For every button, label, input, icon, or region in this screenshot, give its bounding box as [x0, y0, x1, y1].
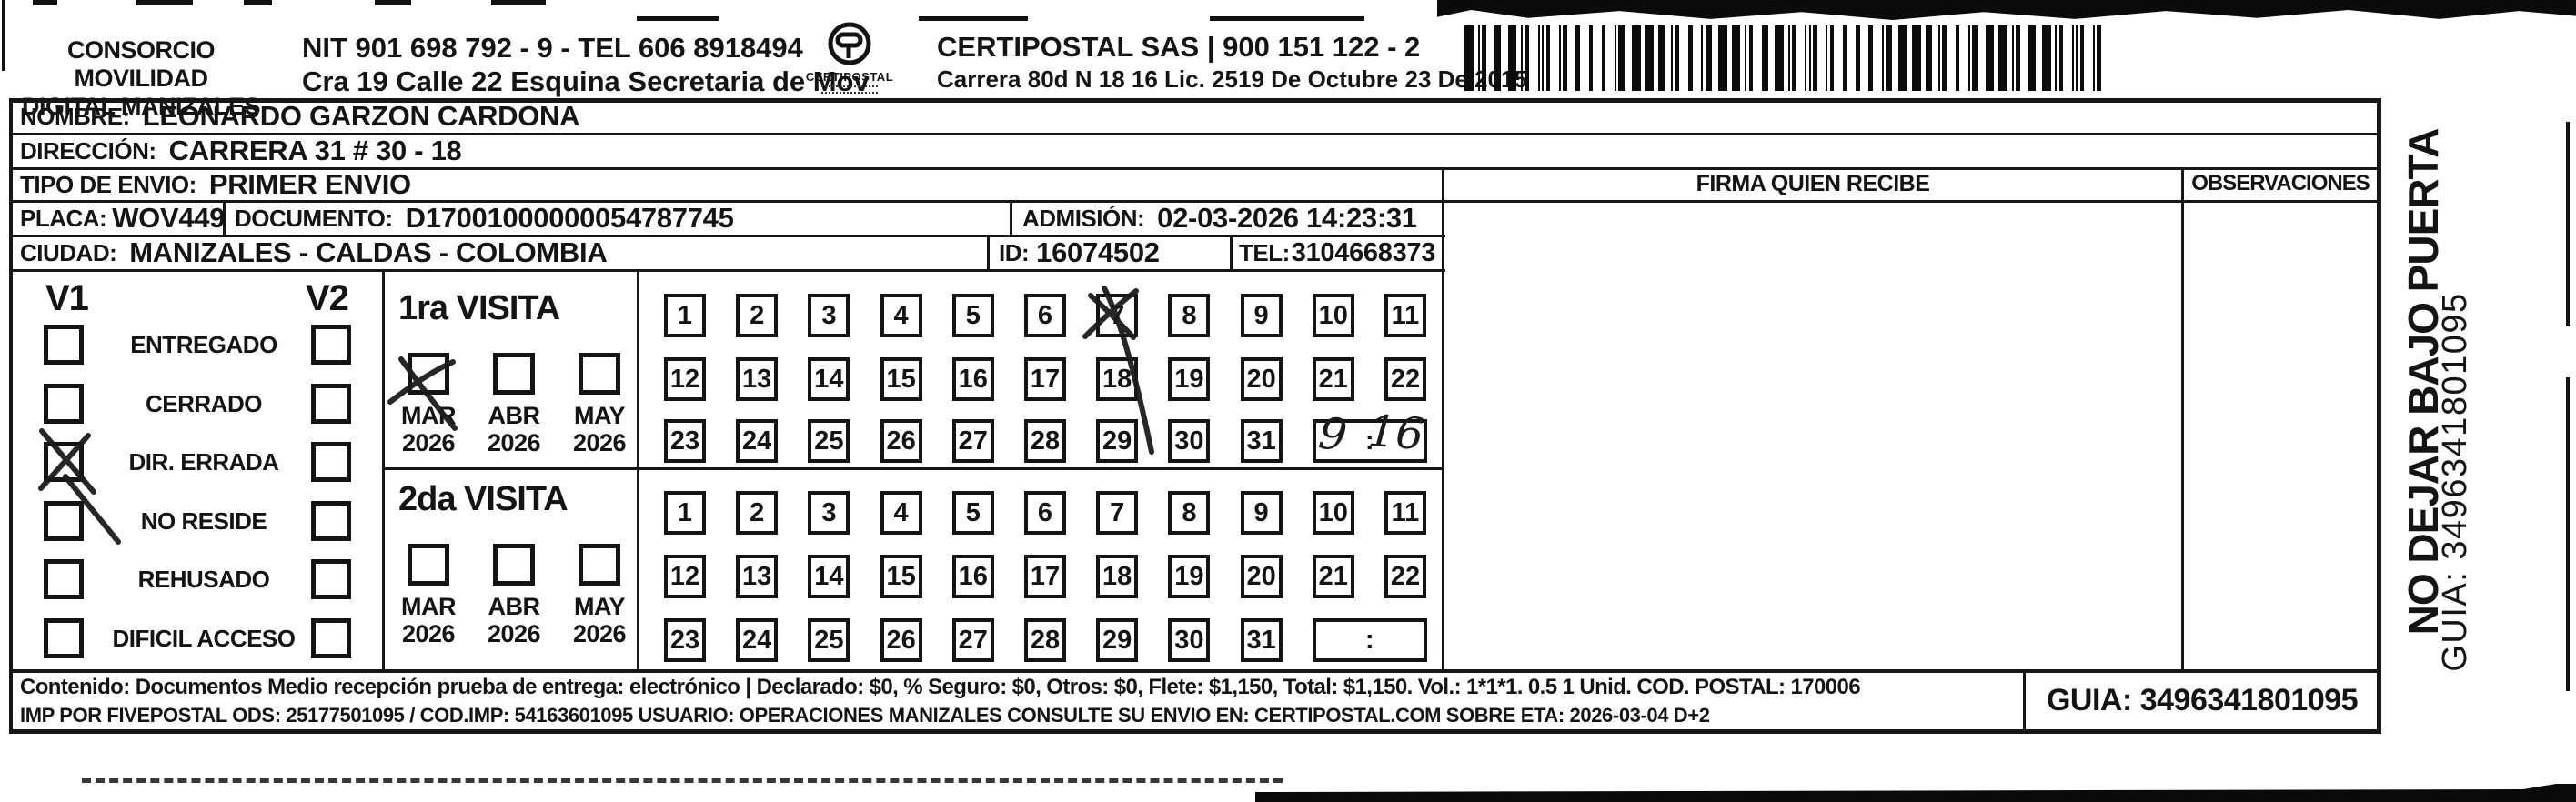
- footer-shipment-details: Contenido: Documentos Medio recepción pr…: [20, 675, 1860, 700]
- visit1-day-11[interactable]: 11: [1384, 294, 1426, 337]
- first-visit-abr-checkbox[interactable]: [493, 353, 535, 395]
- visit1-day-2[interactable]: 2: [736, 294, 778, 337]
- guia-number-cell: GUIA: 3496341801095: [2027, 671, 2378, 729]
- admision-row: ADMISIÓN: 02-03-2026 14:23:31: [1022, 202, 1417, 235]
- placa-value: WOV449: [112, 202, 225, 235]
- v2-checkbox-rehusado[interactable]: [311, 559, 351, 599]
- id-value: 16074502: [1036, 236, 1160, 269]
- id-row: ID: 16074502: [999, 236, 1160, 269]
- sender-address-line: Cra 19 Calle 22 Esquina Secretaria de Mo…: [302, 65, 870, 98]
- visit1-day-15[interactable]: 15: [880, 357, 922, 401]
- table-border-line: [1230, 235, 1233, 269]
- scan-noise-mark: [136, 0, 193, 5]
- documento-value: D17001000000054787745: [406, 202, 734, 235]
- v1-checkbox-no-reside[interactable]: [44, 501, 84, 541]
- barcode-bar: [2072, 25, 2074, 91]
- scan-smudge-top: [1437, 0, 2576, 20]
- scan-noise-mark: [244, 0, 272, 5]
- barcode-bar: [1998, 25, 2007, 91]
- visit1-day-20[interactable]: 20: [1241, 357, 1283, 401]
- second-visit-months: MAR 2026 ABR 2026 MAY 2026: [395, 544, 633, 647]
- scan-noise-mark: [1210, 16, 1364, 21]
- tipo-envio-label: TIPO DE ENVIO:: [20, 171, 196, 199]
- visit1-day-19[interactable]: 19: [1168, 357, 1210, 401]
- barcode-bar: [1559, 25, 1561, 91]
- v2-checkbox-entregado[interactable]: [311, 325, 351, 365]
- tel-label: TEL:: [1239, 239, 1290, 267]
- first-visit-mar-checkbox[interactable]: [408, 353, 449, 395]
- barcode-bar: [2080, 25, 2085, 91]
- month-label: ABR: [488, 593, 540, 620]
- visit2-day-14[interactable]: 14: [808, 555, 850, 598]
- second-visit-month-mar: MAR 2026: [395, 544, 462, 647]
- status-label-rehusado: REHUSADO: [93, 566, 315, 594]
- visit2-day-11[interactable]: 11: [1384, 491, 1426, 535]
- second-visit-abr-checkbox[interactable]: [493, 544, 535, 586]
- visit1-day-25[interactable]: 25: [808, 419, 850, 463]
- certipostal-logo: CERTIPOSTAL: [806, 22, 893, 94]
- tipo-envio-row: TIPO DE ENVIO: PRIMER ENVIO: [20, 169, 411, 200]
- first-visit-months: MAR 2026 ABR 2026 MAY 2026: [395, 353, 633, 456]
- barcode-bar: [1632, 25, 1641, 91]
- barcode-bar: [1868, 25, 1873, 91]
- visit2-day-2[interactable]: 2: [736, 491, 778, 535]
- visit1-day-29[interactable]: 29: [1096, 419, 1138, 463]
- month-label: MAY: [574, 402, 625, 429]
- direccion-value: CARRERA 31 # 30 - 18: [169, 135, 462, 167]
- v2-checkbox-dir-errada[interactable]: [311, 442, 351, 482]
- first-visit-title: 1ra VISITA: [398, 289, 559, 328]
- documento-label: DOCUMENTO:: [235, 205, 393, 233]
- month-label: ABR: [488, 402, 540, 429]
- visit2-day-16[interactable]: 16: [952, 555, 994, 598]
- status-label-dificil-acceso: DIFICIL ACCESO: [93, 625, 315, 653]
- barcode-bar: [1843, 25, 1847, 91]
- barcode-bar: [1886, 25, 1892, 91]
- status-label-dir-errada: DIR. ERRADA: [93, 448, 315, 476]
- visit2-day-4[interactable]: 4: [880, 491, 922, 535]
- observaciones-area[interactable]: [2183, 203, 2378, 669]
- v1-checkbox-rehusado[interactable]: [44, 559, 84, 599]
- visit1-day-8[interactable]: 8: [1168, 294, 1210, 337]
- side-guia-number: GUIA: 3496341801095: [2436, 246, 2476, 718]
- handwritten-time: 9 16: [1315, 409, 1428, 466]
- visit2-time-box[interactable]: :: [1313, 618, 1427, 662]
- table-border-line: [9, 729, 2381, 734]
- company-line1: CONSORCIO MOVILIDAD: [15, 36, 267, 93]
- table-border-line: [2023, 669, 2026, 729]
- visit2-day-19[interactable]: 19: [1168, 555, 1210, 598]
- scan-noise-mark: [2566, 122, 2570, 326]
- barcode-bar: [2055, 25, 2057, 91]
- visit1-day-10[interactable]: 10: [1313, 294, 1354, 337]
- second-visit-title: 2da VISITA: [398, 480, 568, 519]
- barcode-bar: [1618, 25, 1625, 91]
- barcode-bar: [1542, 25, 1544, 91]
- barcode-bar: [1805, 25, 1806, 91]
- table-border-line: [987, 235, 990, 269]
- visit1-day-28[interactable]: 28: [1024, 419, 1066, 463]
- year-label: 2026: [573, 620, 626, 647]
- scan-edge-black-band: [1255, 784, 2576, 802]
- barcode-bar: [1809, 25, 1811, 91]
- visit1-day-21[interactable]: 21: [1313, 357, 1354, 401]
- visit2-day-22[interactable]: 22: [1384, 555, 1426, 598]
- visit1-day-22[interactable]: 22: [1384, 357, 1426, 401]
- visit1-day-31[interactable]: 31: [1241, 419, 1283, 463]
- barcode-bar: [1788, 25, 1790, 91]
- visit2-day-18[interactable]: 18: [1096, 555, 1138, 598]
- second-visit-may-checkbox[interactable]: [579, 544, 620, 586]
- barcode-bar: [1602, 25, 1606, 91]
- barcode-bar: [1813, 25, 1817, 91]
- status-label-entregado: ENTREGADO: [93, 331, 315, 359]
- admision-label: ADMISIÓN:: [1022, 205, 1144, 233]
- nit-tel-line: NIT 901 698 792 - 9 - TEL 606 8918494: [302, 31, 870, 65]
- visit2-day-6[interactable]: 6: [1024, 491, 1066, 535]
- barcode-bar: [1732, 25, 1741, 91]
- visit2-day-26[interactable]: 26: [880, 618, 922, 662]
- barcode-bar: [2059, 25, 2064, 91]
- scan-noise-mark: [2, 0, 5, 71]
- barcode-bar: [1912, 25, 1921, 91]
- barcode-bar: [1688, 25, 1693, 91]
- first-visit-month-abr: ABR 2026: [480, 353, 548, 456]
- barcode-bar: [1830, 25, 1835, 91]
- sender-contact: NIT 901 698 792 - 9 - TEL 606 8918494 Cr…: [302, 31, 870, 98]
- year-label: 2026: [402, 429, 455, 456]
- scan-noise-mark: [637, 16, 719, 21]
- v1-checkbox-dir-errada[interactable]: [44, 442, 84, 482]
- barcode-bar: [1658, 25, 1665, 91]
- firma-quien-recibe-header: FIRMA QUIEN RECIBE: [1444, 169, 2181, 198]
- first-visit-month-mar: MAR 2026: [395, 353, 462, 456]
- v1-checkbox-entregado[interactable]: [44, 325, 84, 365]
- barcode-bar: [1482, 25, 1486, 91]
- barcode-bar: [2097, 25, 2101, 91]
- visit1-day-23[interactable]: 23: [664, 419, 706, 463]
- barcode-bar: [1615, 25, 1616, 91]
- barcode-bar: [1972, 25, 1978, 91]
- table-border-line: [382, 269, 385, 669]
- barcode-bar: [1464, 25, 1474, 91]
- barcode-bar: [1882, 25, 1884, 91]
- direccion-label: DIRECCIÓN:: [20, 137, 156, 165]
- barcode-bar: [1478, 25, 1480, 91]
- barcode-bar: [1749, 25, 1754, 91]
- barcode-bar: [1745, 25, 1746, 91]
- visit2-day-20[interactable]: 20: [1241, 555, 1283, 598]
- visit2-day-21[interactable]: 21: [1313, 555, 1354, 598]
- status-label-no-reside: NO RESIDE: [93, 507, 315, 536]
- status-label-cerrado: CERRADO: [93, 390, 315, 418]
- barcode-bar: [1775, 25, 1784, 91]
- shipping-label-scan: CONSORCIO MOVILIDAD DIGITAL MANIZALES NI…: [0, 0, 2576, 802]
- logo-tagline-squiggle: [821, 85, 878, 94]
- barcode-bar: [1718, 25, 1727, 91]
- visit2-day-27[interactable]: 27: [952, 618, 994, 662]
- observaciones-header: OBSERVACIONES: [2183, 169, 2378, 198]
- visit2-day-17[interactable]: 17: [1024, 555, 1066, 598]
- second-visit-month-abr: ABR 2026: [480, 544, 548, 647]
- visit1-day-1[interactable]: 1: [664, 294, 706, 337]
- visit1-day-7[interactable]: 7: [1096, 294, 1138, 337]
- visit1-day-3[interactable]: 3: [808, 294, 850, 337]
- ciudad-label: CIUDAD:: [20, 239, 116, 267]
- barcode-bar: [1986, 25, 1995, 91]
- month-label: MAY: [574, 593, 625, 620]
- nombre-value: LEONARDO GARZON CARDONA: [143, 100, 579, 133]
- visit2-day-28[interactable]: 28: [1024, 618, 1066, 662]
- placa-row: PLACA: WOV449: [20, 202, 225, 235]
- tipo-envio-value: PRIMER ENVIO: [209, 168, 411, 201]
- barcode-bar: [1563, 25, 1567, 91]
- tel-row: TEL: 3104668373: [1239, 236, 1435, 269]
- visit2-day-9[interactable]: 9: [1241, 491, 1283, 535]
- visit2-day-1[interactable]: 1: [664, 491, 706, 535]
- visit1-day-14[interactable]: 14: [808, 357, 850, 401]
- scan-noise-mark: [33, 0, 57, 5]
- visit1-day-18[interactable]: 18: [1096, 357, 1138, 401]
- barcode-bar: [1956, 25, 1960, 91]
- first-visit-may-checkbox[interactable]: [579, 353, 620, 395]
- delivery-status-panel: ENTREGADOCERRADODIR. ERRADANO RESIDEREHU…: [9, 269, 382, 669]
- scan-edge-dashed-line: [82, 778, 1283, 783]
- barcode-bar: [2093, 25, 2095, 91]
- visit1-day-16[interactable]: 16: [952, 357, 994, 401]
- visit1-day-17[interactable]: 17: [1024, 357, 1066, 401]
- visit2-day-5[interactable]: 5: [952, 491, 994, 535]
- month-label: MAR: [401, 593, 456, 620]
- first-visit-month-may: MAY 2026: [566, 353, 633, 456]
- v2-checkbox-dificil-acceso[interactable]: [311, 618, 351, 658]
- v2-checkbox-cerrado[interactable]: [311, 384, 351, 424]
- visit2-day-25[interactable]: 25: [808, 618, 850, 662]
- documento-row: DOCUMENTO: D17001000000054787745: [235, 202, 734, 235]
- barcode-bar: [1508, 25, 1517, 91]
- handwritten-hour: 9: [1316, 407, 1350, 461]
- logo-name: CERTIPOSTAL: [806, 70, 893, 84]
- visit2-day-8[interactable]: 8: [1168, 491, 1210, 535]
- barcode-bar: [1675, 25, 1680, 91]
- barcode-bar: [1968, 25, 1970, 91]
- second-visit-month-may: MAY 2026: [566, 544, 633, 647]
- placa-label: PLACA:: [20, 205, 106, 233]
- barcode-bar: [1762, 25, 1768, 91]
- scan-noise-mark: [375, 0, 411, 5]
- scan-noise-mark: [2566, 377, 2570, 691]
- second-visit-day-grid: 1234567891011121314151617181920212223242…: [637, 467, 1442, 669]
- barcode-bar: [1792, 25, 1796, 91]
- barcode-bar: [1589, 25, 1594, 91]
- visit2-day-31[interactable]: 31: [1241, 618, 1283, 662]
- barcode-bar: [1494, 25, 1501, 91]
- year-label: 2026: [402, 620, 455, 647]
- barcode-bar: [1826, 25, 1827, 91]
- tracking-barcode: [1464, 25, 2112, 93]
- visit1-day-5[interactable]: 5: [952, 294, 994, 337]
- visit1-day-6[interactable]: 6: [1024, 294, 1066, 337]
- v2-checkbox-no-reside[interactable]: [311, 501, 351, 541]
- ciudad-row: CIUDAD: MANIZALES - CALDAS - COLOMBIA: [20, 236, 607, 269]
- direccion-row: DIRECCIÓN: CARRERA 31 # 30 - 18: [20, 135, 462, 167]
- barcode-bar: [1942, 25, 1947, 91]
- month-label: MAR: [401, 402, 456, 429]
- barcode-bar: [1926, 25, 1932, 91]
- table-border-line: [1010, 200, 1012, 235]
- visit1-day-27[interactable]: 27: [952, 419, 994, 463]
- barcode-bar: [1521, 25, 1523, 91]
- visit2-day-7[interactable]: 7: [1096, 491, 1138, 535]
- visit1-day-12[interactable]: 12: [664, 357, 706, 401]
- barcode-bar: [1706, 25, 1712, 91]
- visit2-day-29[interactable]: 29: [1096, 618, 1138, 662]
- v1-checkbox-cerrado[interactable]: [44, 384, 84, 424]
- visit2-day-23[interactable]: 23: [664, 618, 706, 662]
- barcode-bar: [1575, 25, 1580, 91]
- scan-noise-mark: [491, 0, 546, 5]
- carrier-name-nit: CERTIPOSTAL SAS | 900 151 122 - 2: [937, 31, 1420, 64]
- barcode-bar: [2028, 25, 2035, 91]
- nombre-row: NOMBRE: LEONARDO GARZON CARDONA: [20, 100, 579, 133]
- barcode-bar: [2076, 25, 2078, 91]
- barcode-bar: [1525, 25, 1530, 91]
- scan-noise-mark: [919, 16, 1028, 21]
- visit2-day-12[interactable]: 12: [664, 555, 706, 598]
- barcode-bar: [1538, 25, 1540, 91]
- visit2-day-13[interactable]: 13: [736, 555, 778, 598]
- visit2-day-3[interactable]: 3: [808, 491, 850, 535]
- barcode-bar: [1671, 25, 1673, 91]
- barcode-bar: [2012, 25, 2014, 91]
- v1-checkbox-dificil-acceso[interactable]: [44, 618, 84, 658]
- carrier-address-license: Carrera 80d N 18 16 Lic. 2519 De Octubre…: [937, 65, 1527, 94]
- visit1-day-26[interactable]: 26: [880, 419, 922, 463]
- visit2-day-24[interactable]: 24: [736, 618, 778, 662]
- visit2-day-30[interactable]: 30: [1168, 618, 1210, 662]
- visit1-day-4[interactable]: 4: [880, 294, 922, 337]
- ciudad-value: MANIZALES - CALDAS - COLOMBIA: [129, 236, 607, 269]
- visit1-day-24[interactable]: 24: [736, 419, 778, 463]
- visit1-day-13[interactable]: 13: [736, 357, 778, 401]
- barcode-bar: [1856, 25, 1860, 91]
- visit1-day-30[interactable]: 30: [1168, 419, 1210, 463]
- handwritten-minutes: 16: [1366, 406, 1425, 460]
- barcode-bar: [1701, 25, 1703, 91]
- barcode-bar: [1645, 25, 1654, 91]
- year-label: 2026: [488, 620, 540, 647]
- barcode-bar: [2042, 25, 2051, 91]
- firma-signature-area[interactable]: [1444, 203, 2181, 669]
- certipostal-logo-icon: [820, 22, 879, 69]
- visit1-day-9[interactable]: 9: [1241, 294, 1283, 337]
- visit2-day-10[interactable]: 10: [1313, 491, 1354, 535]
- barcode-bar: [1938, 25, 1940, 91]
- nombre-label: NOMBRE:: [20, 103, 130, 131]
- year-label: 2026: [573, 429, 626, 456]
- visit2-day-15[interactable]: 15: [880, 555, 922, 598]
- id-label: ID:: [999, 239, 1029, 267]
- tel-value: 3104668373: [1292, 238, 1435, 268]
- barcode-bar: [1898, 25, 1907, 91]
- barcode-bar: [1546, 25, 1551, 91]
- year-label: 2026: [488, 429, 540, 456]
- second-visit-mar-checkbox[interactable]: [408, 544, 449, 586]
- barcode-bar: [2016, 25, 2020, 91]
- admision-value: 02-03-2026 14:23:31: [1157, 202, 1417, 235]
- footer-import-details: IMP POR FIVEPOSTAL ODS: 25177501095 / CO…: [20, 704, 1710, 727]
